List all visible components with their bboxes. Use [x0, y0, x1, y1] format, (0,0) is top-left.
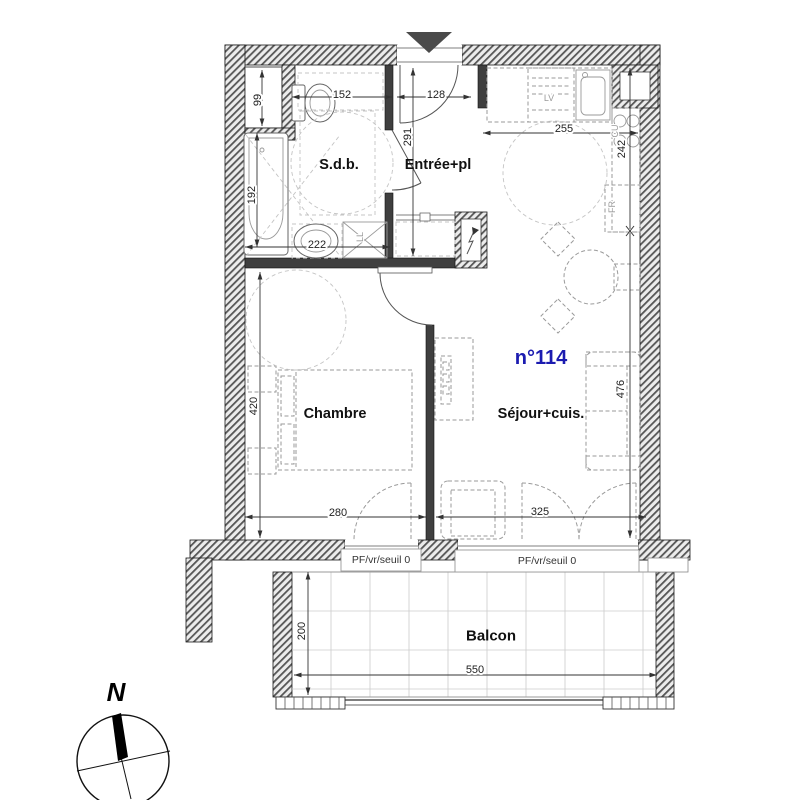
entry-closet	[396, 213, 455, 256]
nightstand	[248, 448, 276, 474]
tv-unit-detail	[443, 386, 449, 394]
dining-table	[564, 250, 618, 304]
wall-bottom-right	[638, 540, 690, 560]
dim-living-depth: 476	[615, 380, 627, 398]
pillow	[281, 376, 294, 416]
dim-living-width: 325	[531, 506, 549, 518]
dim-entry-door-width: 128	[427, 89, 445, 101]
duct-niche-kitchen	[612, 65, 658, 108]
dim-bathroom-width: 222	[308, 239, 326, 251]
dishwasher-label: LV	[544, 93, 554, 103]
turning-circle-living	[503, 121, 607, 225]
wall-bedroom-living	[426, 325, 434, 540]
wall-left	[225, 45, 245, 560]
wall-entry-kitchen	[478, 65, 487, 108]
dim-entry-depth: 291	[402, 128, 414, 146]
sofa-armrest	[586, 456, 640, 470]
bathroom-door-swing	[392, 183, 421, 190]
dim-kitchen-depth: 242	[616, 140, 628, 158]
railing-band-left	[276, 697, 345, 709]
compass-south-line	[121, 757, 131, 799]
dim-bedroom-depth: 420	[248, 397, 260, 415]
bedroom-window	[345, 483, 418, 560]
dim-kitchen-width: 255	[555, 123, 573, 135]
technical-shaft	[455, 212, 487, 268]
dim-balcony-depth: 200	[296, 622, 308, 640]
north-compass: N	[77, 677, 170, 800]
window-labels: PF/vr/seuil 0 PF/vr/seuil 0	[341, 549, 639, 572]
dim-bathtub-length: 192	[246, 186, 258, 204]
dining-chair	[541, 222, 575, 256]
turning-circle-bedroom	[246, 270, 346, 370]
fridge-label: FR	[607, 201, 617, 213]
room-label-bathroom: S.d.b.	[319, 157, 358, 173]
tv-unit-detail	[443, 362, 449, 370]
cooktop-label: CU	[610, 125, 620, 138]
wall-right	[640, 45, 660, 560]
toilet-tank	[292, 85, 305, 121]
living-window	[458, 483, 638, 560]
threshold-right	[648, 558, 688, 572]
shaft-interior	[461, 219, 481, 261]
room-label-balcony: Balcon	[466, 628, 516, 645]
washer-label: LL	[355, 232, 365, 242]
dim-wc-width: 152	[333, 89, 351, 101]
living-window-door-swing-right	[579, 483, 636, 540]
wall-top-left	[225, 45, 397, 65]
wall-bottom-center	[418, 540, 458, 560]
wall-balcony-left	[273, 572, 292, 697]
tv-unit-detail	[443, 374, 449, 382]
bedroom-furniture	[246, 270, 412, 474]
armchair-seat	[451, 490, 495, 536]
cooktop-burner	[627, 135, 639, 147]
entrance-opening	[397, 32, 462, 123]
bedroom-door	[378, 267, 432, 325]
pillow	[281, 424, 294, 464]
bedroom-door-swing	[380, 273, 432, 325]
sofa-armrest	[586, 352, 640, 366]
railing-band-right	[603, 697, 674, 709]
closet-handle	[420, 213, 430, 221]
dining-chair	[541, 299, 575, 333]
window-label-bedroom: PF/vr/seuil 0	[352, 554, 411, 566]
dimension-labels: 99 152 128 291 255 242 192 222 420 280 3…	[246, 89, 628, 676]
bedroom-door-leaf	[378, 267, 432, 273]
closet-interior	[396, 222, 455, 256]
floor-plan-page: 99 152 128 291 255 242 192 222 420 280 3…	[0, 0, 788, 800]
compass-needle	[112, 713, 128, 761]
balcony-railing	[276, 697, 674, 709]
wall-sdb-entry-bottom	[385, 193, 393, 268]
wall-balcony-screen-left	[186, 558, 212, 642]
window-label-living: PF/vr/seuil 0	[518, 555, 577, 567]
dim-bedroom-width: 280	[329, 507, 347, 519]
nightstand	[248, 366, 276, 392]
cooktop-burner	[627, 115, 639, 127]
kitchen-duct-interior	[620, 72, 650, 100]
kitchen-sink-basin	[581, 77, 605, 115]
room-label-bedroom: Chambre	[304, 406, 367, 422]
bedroom-window-door-swing	[354, 483, 411, 540]
compass-north-label: N	[107, 677, 127, 707]
wall-sdb-entry-top	[385, 65, 393, 130]
dim-balcony-width: 550	[466, 664, 484, 676]
room-label-living: Séjour+cuis.	[498, 406, 585, 422]
dim-duct-height: 99	[252, 94, 264, 106]
unit-number: n°114	[515, 347, 568, 369]
wall-balcony-right	[656, 572, 674, 697]
wall-top-right	[462, 45, 660, 65]
living-furniture	[435, 222, 640, 539]
wall-bottom-left	[190, 540, 345, 560]
wall-bath-bedroom	[245, 258, 457, 268]
room-label-entry: Entrée+pl	[405, 157, 471, 173]
floor-plan-svg: 99 152 128 291 255 242 192 222 420 280 3…	[0, 0, 788, 800]
